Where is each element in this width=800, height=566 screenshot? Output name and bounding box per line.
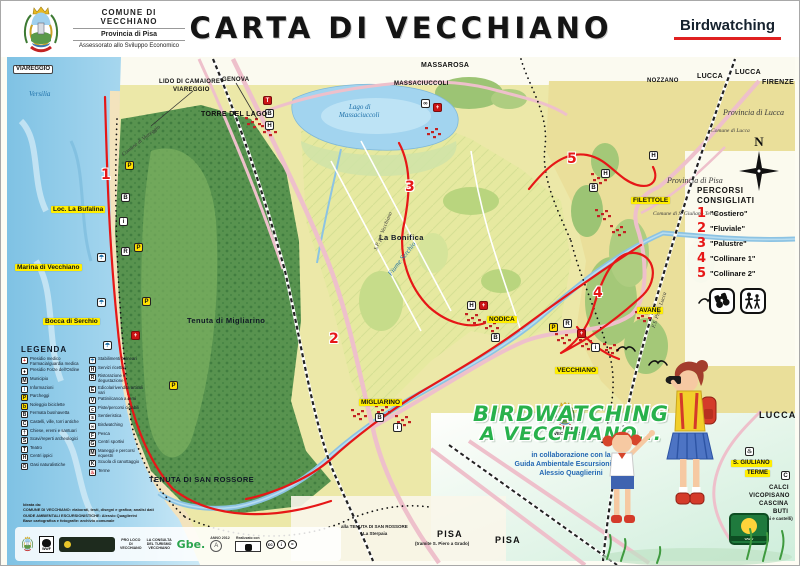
- legend-item-label: Centri ippici: [30, 454, 52, 459]
- comune-crest-small: [21, 536, 34, 552]
- legend-item-presidio-forze-dell-ordine: ♦Presidio Forze dell'Ordine: [21, 368, 83, 375]
- map-icon: ∞: [421, 99, 430, 108]
- map-icon: H: [601, 169, 610, 178]
- realizzato-label: Realizzato con: [236, 536, 260, 540]
- map-label-nozzano: NOZZANO: [647, 78, 679, 85]
- map-canvas: VIAREGGIOVersiliaLIDO DI CAMAIOREVIAREGG…: [1, 1, 800, 566]
- oasi-naturalistiche-icon: O: [21, 463, 28, 470]
- map-label-viareggio: VIAREGGIO: [173, 87, 210, 94]
- route-item-3: 3"Palustre": [697, 236, 799, 251]
- park-logo: [59, 537, 115, 552]
- map-icon: H: [467, 301, 476, 310]
- map-label-provincia-di-pisa: Provincia di Pisa: [667, 177, 723, 186]
- route-label: "Fluviale": [710, 224, 745, 233]
- legend-item-label: Parcheggi: [30, 394, 49, 399]
- map-icon: i: [119, 217, 128, 226]
- map-icon: R: [563, 319, 572, 328]
- map-label-firenze: FIRENZE: [762, 79, 794, 87]
- parcheggi-icon: P: [21, 394, 28, 401]
- map-label-la-bonifica: La Bonifica: [379, 234, 424, 242]
- legend-item-label: Maneggi e percorsi equestri: [98, 449, 151, 459]
- legend-item-pesca: FPesca: [89, 432, 151, 439]
- pattini-canoa-a-remi-icon: V: [89, 397, 96, 404]
- map-label-lucca: LUCCA: [735, 69, 761, 77]
- route-label: "Collinare 2": [710, 269, 755, 278]
- legend-item-label: Noleggio biciclette: [30, 403, 65, 408]
- map-icon: P: [549, 323, 558, 332]
- map-icon: +: [131, 331, 140, 340]
- map-icon: ☂: [97, 253, 106, 262]
- legend-item-label: Scavi/reperti archeologici: [30, 437, 78, 442]
- legend-item-label: Chiese, eremi e santuari: [30, 429, 77, 434]
- route-number: 3: [697, 236, 710, 251]
- terme-icon: ♨: [89, 469, 96, 476]
- credit-line: Base cartografica e fotografie: archivio…: [23, 518, 283, 523]
- legend-item-scuola-di-canottaggio: KScuola di canottaggio: [89, 460, 151, 467]
- legend-item-pattini-canoa-a-remi: VPattini/canoa a remi: [89, 397, 151, 404]
- legend-panel: LEGENDA +Presidio medico Farmacia/guardi…: [21, 345, 171, 477]
- noleggio-biciclette-icon: b: [21, 403, 28, 410]
- legend-item-label: Terme: [98, 469, 110, 474]
- map-label-pisa: PISA: [437, 530, 463, 540]
- map-icon: T: [263, 96, 272, 105]
- footer-logo-strip: WWF PRO LOCO DI VECCHIANO LA CONSULTA DE…: [15, 527, 341, 561]
- route-number: 1: [697, 206, 710, 221]
- routes-icons-row: [709, 288, 799, 314]
- route-label: "Costiero": [710, 209, 748, 218]
- map-icon: ☂: [97, 298, 106, 307]
- stamp-logo: A: [210, 540, 222, 552]
- legend-item-label: Piste/percorsi ciclabili: [98, 406, 139, 411]
- map-label-lucca: LUCCA: [697, 73, 723, 81]
- map-icon: P: [134, 243, 143, 252]
- binoculars-icon: [709, 288, 735, 314]
- map-label-massarosa: MASSAROSA: [421, 62, 469, 70]
- software-logo: [235, 541, 261, 552]
- legend-item-label: Municipio: [30, 377, 48, 382]
- birdwatchers-illustration: [597, 351, 797, 566]
- legend-item-label: Scuola di canottaggio: [98, 460, 139, 465]
- legend-item-label: Castelli, ville, torri antiche: [30, 420, 79, 425]
- legend-item-centri-ippici: HCentri ippici: [21, 454, 83, 461]
- map-label-tenuta-di-migliarino: Tenuta di Migliarino: [187, 317, 265, 325]
- map-icon: H: [649, 151, 658, 160]
- chiese-eremi-e-santuari-icon: †: [21, 429, 28, 436]
- legend-item-scavi-reperti-archeologici: SScavi/reperti archeologici: [21, 437, 83, 444]
- map-icon: B: [375, 413, 384, 422]
- scuola-di-canottaggio-icon: K: [89, 460, 96, 467]
- anno-label: ANNO 2012: [210, 536, 230, 540]
- edicola-rivendita-articoli-vari-icon: E: [89, 386, 96, 393]
- legend-item-piste-percorsi-ciclabili: cPiste/percorsi ciclabili: [89, 406, 151, 413]
- proloco-logo-text: PRO LOCO DI VECCHIANO: [120, 538, 142, 551]
- route-marker-1: 1: [101, 167, 111, 183]
- pesca-icon: F: [89, 432, 96, 439]
- gbe-logo: Gbe.: [177, 538, 206, 551]
- legend-item-oasi-naturalistiche: OOasi naturalistiche: [21, 463, 83, 470]
- map-label-filettole: FILETTOLE: [631, 197, 670, 204]
- route-item-2: 2"Fluviale": [697, 221, 799, 236]
- cc-icon: i: [277, 540, 286, 549]
- route-number: 4: [697, 251, 710, 266]
- legend-item-label: Sentieristica: [98, 414, 121, 419]
- legend-item-sentieristica: sSentieristica: [89, 414, 151, 421]
- map-label-bocca-di-serchio: Bocca di Serchio: [43, 318, 100, 325]
- map-label-massaciuccoli: MASSACIUCCOLI: [394, 81, 449, 88]
- routes-title-line1: PERCORSI: [697, 186, 799, 196]
- map-label-la-sterpaia: La Sterpaia: [363, 532, 387, 537]
- routes-list: 1"Costiero"2"Fluviale"3"Palustre"4"Colli…: [697, 206, 799, 281]
- route-item-4: 4"Collinare 1": [697, 251, 799, 266]
- route-label: "Palustre": [710, 239, 747, 248]
- map-icon: P: [142, 297, 151, 306]
- legend-item-noleggio-biciclette: bNoleggio biciclette: [21, 403, 83, 410]
- wwf-logo: WWF: [39, 536, 54, 553]
- centri-sportivi-icon: G: [89, 440, 96, 447]
- routes-panel-title: PERCORSI CONSIGLIATI: [697, 186, 799, 206]
- realizzato-block: Realizzato con: [235, 536, 261, 552]
- sentieristica-icon: s: [89, 414, 96, 421]
- legend-item-chiese-eremi-e-santuari: †Chiese, eremi e santuari: [21, 429, 83, 436]
- municipio-icon: M: [21, 377, 28, 384]
- castelli-ville-torri-antiche-icon: C: [21, 420, 28, 427]
- ristorazione-e-degustazione-icon: R: [89, 374, 96, 381]
- legend-column-1: +Presidio medico Farmacia/guardia medica…: [21, 357, 83, 477]
- map-icon: B: [491, 333, 500, 342]
- presidio-medico-farmacia-guardia-icon: +: [21, 357, 28, 364]
- legend-item-castelli-ville-torri-antiche: CCastelli, ville, torri antiche: [21, 420, 83, 427]
- legend-item-teatro: TTeatro: [21, 446, 83, 453]
- route-marker-2: 2: [329, 331, 339, 347]
- legend-item-label: Fermata bus/navetta: [30, 411, 69, 416]
- map-icon: B: [589, 183, 598, 192]
- legend-item-parcheggi: PParcheggi: [21, 394, 83, 401]
- map-label-alla-tenuta-di-san-rossore: alla TENUTA DI SAN ROSSORE: [341, 525, 408, 530]
- presidio-forze-dell-ordine-icon: ♦: [21, 368, 28, 375]
- map-label-loc-la-bufalina: Loc. La Bufalina: [51, 206, 105, 213]
- centri-ippici-icon: H: [21, 454, 28, 461]
- route-marker-5: 5: [567, 151, 577, 167]
- legend-item-edicola-rivendita-articoli-vari: EEdicola/rivendita articoli vari: [89, 386, 151, 396]
- legend-item-fermata-bus-navetta: BFermata bus/navetta: [21, 411, 83, 418]
- legend-item-label: Servizi ricettivi: [98, 366, 125, 371]
- route-item-5: 5"Collinare 2": [697, 266, 799, 281]
- map-label-tramite-s-piero-a-grado: (tramite S. Piero a Grado): [415, 542, 469, 547]
- cc-icon: cc: [266, 540, 275, 549]
- route-marker-4: 4: [593, 285, 603, 301]
- wwf-text: WWF: [40, 547, 53, 551]
- legend-item-municipio: MMunicipio: [21, 377, 83, 384]
- maneggi-e-percorsi-equestri-icon: M: [89, 449, 96, 456]
- route-label: "Collinare 1": [710, 254, 755, 263]
- compass-n-label: N: [736, 134, 782, 150]
- legend-item-label: Presidio medico Farmacia/guardia medica: [30, 357, 83, 367]
- legend-item-label: Informazioni: [30, 386, 53, 391]
- scavi-reperti-archeologici-icon: S: [21, 437, 28, 444]
- route-item-1: 1"Costiero": [697, 206, 799, 221]
- legend-title: LEGENDA: [21, 345, 171, 354]
- legend-item-ristorazione-e-degustazione: RRistorazione e degustazione: [89, 374, 151, 384]
- servizi-ricettivi-icon: H: [89, 366, 96, 373]
- legend-item-label: Pattini/canoa a remi: [98, 397, 136, 402]
- legend-columns: +Presidio medico Farmacia/guardia medica…: [21, 357, 171, 477]
- header-bar: COMUNE DI VECCHIANO Provincia di Pisa As…: [1, 1, 800, 57]
- informazioni-icon: i: [21, 386, 28, 393]
- piste-percorsi-ciclabili-icon: c: [89, 406, 96, 413]
- routes-title-line2: CONSIGLIATI: [697, 196, 799, 206]
- legend-item-label: Birdwatching: [98, 423, 123, 428]
- legend-item-informazioni: iInformazioni: [21, 386, 83, 393]
- map-icon: R: [121, 247, 130, 256]
- fermata-bus-navetta-icon: B: [21, 411, 28, 418]
- legend-item-presidio-medico-farmacia-guardia: +Presidio medico Farmacia/guardia medica: [21, 357, 83, 367]
- legend-item-label: Pesca: [98, 432, 110, 437]
- map-icon: H: [265, 121, 274, 130]
- legend-item-label: Presidio Forze dell'Ordine: [30, 368, 79, 373]
- map-label-lido-di-camaiore: LIDO DI CAMAIORE: [159, 79, 220, 86]
- legend-item-label: Oasi naturalistiche: [30, 463, 65, 468]
- birdwatching-icon: ∞: [89, 423, 96, 430]
- map-label-viareggio: VIAREGGIO: [13, 65, 53, 74]
- legend-item-centri-sportivi: GCentri sportivi: [89, 440, 151, 447]
- map-label-genova: GENOVA: [222, 77, 249, 84]
- legend-item-label: Edicola/rivendita articoli vari: [98, 386, 151, 396]
- map-label-marina-di-vecchiano: Marina di Vecchiano: [15, 264, 82, 271]
- map-label-pisa: PISA: [495, 536, 521, 546]
- map-label-provincia-di-lucca: Provincia di Lucca: [723, 109, 784, 118]
- map-icon: +: [479, 301, 488, 310]
- map-label-nodica: NODICA: [487, 316, 517, 323]
- hikers-icon: [740, 288, 766, 314]
- map-poster: VIAREGGIOVersiliaLIDO DI CAMAIOREVIAREGG…: [0, 0, 800, 566]
- panda-icon: [42, 539, 51, 547]
- map-label-massaciuccoli: Massaciuccoli: [339, 112, 379, 120]
- route-number: 5: [697, 266, 710, 281]
- route-number: 2: [697, 221, 710, 236]
- credits-block: Ideata da:COMUNE DI VECCHIANO: elaborati…: [23, 502, 283, 523]
- cc-icon: =: [288, 540, 297, 549]
- map-icon: B: [121, 193, 130, 202]
- map-icon: +: [577, 329, 586, 338]
- suggested-routes-panel: PERCORSI CONSIGLIATI 1"Costiero"2"Fluvia…: [697, 186, 799, 314]
- map-label-versilia: Versilia: [29, 91, 50, 99]
- legend-item-birdwatching: ∞Birdwatching: [89, 423, 151, 430]
- consulta-logo-text: LA CONSULTA DEL TURISMO VECCHIANO: [147, 538, 172, 551]
- legend-item-label: Stabilimenti balneari: [98, 357, 137, 362]
- legend-item-label: Teatro: [30, 446, 42, 451]
- stabilimenti-balneari-icon: ☂: [89, 357, 96, 364]
- legend-item-maneggi-e-percorsi-equestri: MManeggi e percorsi equestri: [89, 449, 151, 459]
- legend-item-servizi-ricettivi: HServizi ricettivi: [89, 366, 151, 373]
- map-icon: i: [393, 423, 402, 432]
- map-label-migliarino: MIGLIARINO: [359, 399, 402, 406]
- map-label-vecchiano: VECCHIANO: [555, 367, 598, 374]
- route-marker-3: 3: [405, 179, 415, 195]
- legend-item-label: Centri sportivi: [98, 440, 124, 445]
- legend-item-label: Ristorazione e degustazione: [98, 374, 151, 384]
- topic-badge: Birdwatching: [674, 17, 781, 40]
- teatro-icon: T: [21, 446, 28, 453]
- map-icon: +: [433, 103, 442, 112]
- map-icon: P: [125, 161, 134, 170]
- legend-item-terme: ♨Terme: [89, 469, 151, 476]
- legend-item-stabilimenti-balneari: ☂Stabilimenti balneari: [89, 357, 151, 364]
- creative-commons-icons: cci=: [266, 540, 297, 549]
- map-label-torre-del-lago: TORRE DEL LAGO: [201, 111, 268, 119]
- legend-column-2: ☂Stabilimenti balneariHServizi ricettivi…: [89, 357, 151, 477]
